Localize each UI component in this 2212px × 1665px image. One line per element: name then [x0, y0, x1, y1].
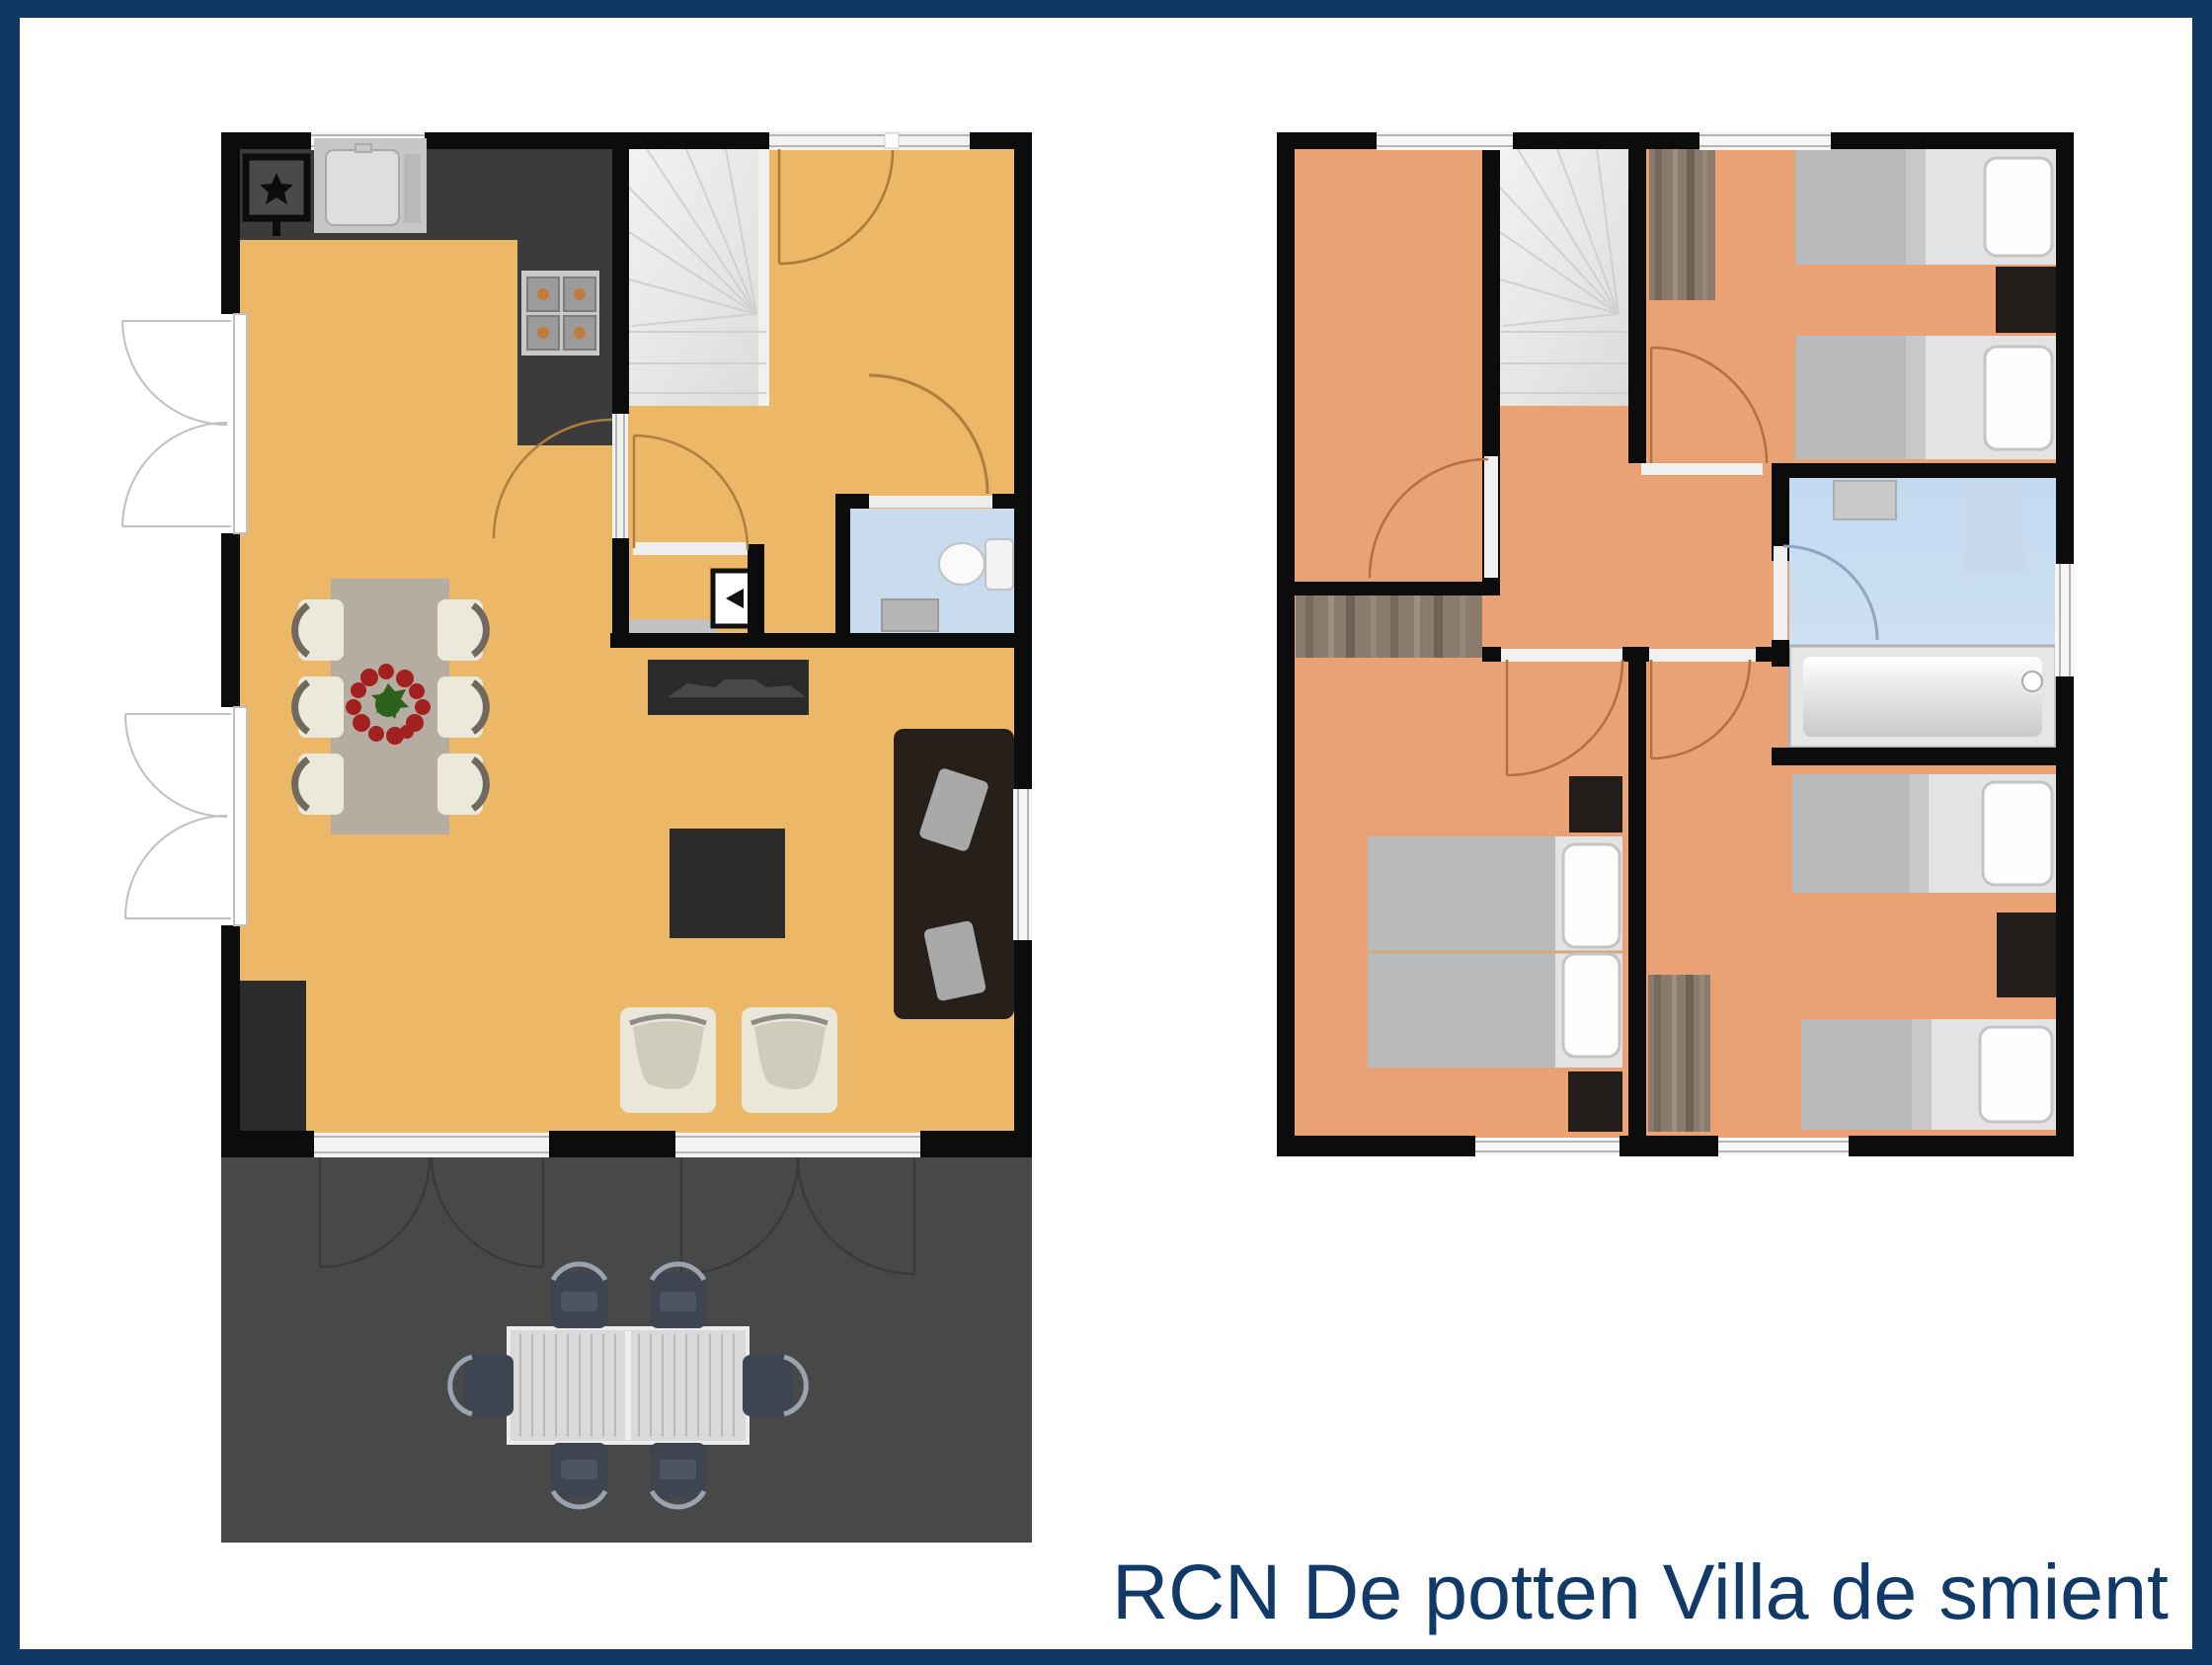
svg-text:RCN De potten Villa de smient: RCN De potten Villa de smient — [1112, 1547, 2169, 1635]
